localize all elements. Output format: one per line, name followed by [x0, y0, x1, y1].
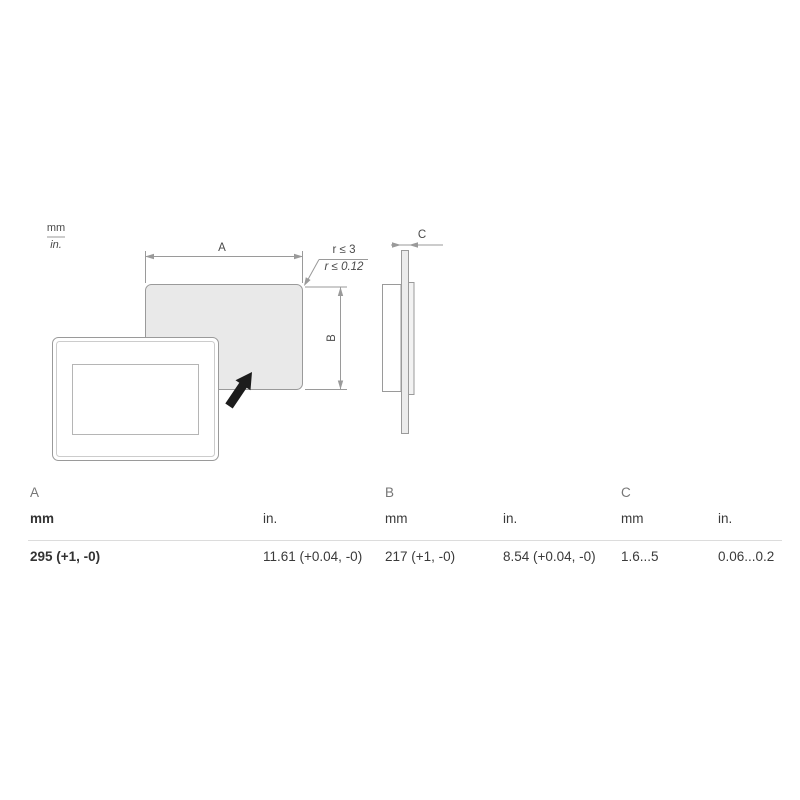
dim-c-label: C — [409, 230, 435, 242]
panel-cutout-drawing-page: mm in. A B C r ≤ 3 r ≤ 0.12 A B C mm in.… — [0, 0, 800, 800]
table-unit-b-mm: mm — [385, 512, 408, 527]
table-unit-c-in: in. — [718, 512, 732, 527]
dim-a-arrow-right — [294, 254, 303, 259]
table-group-c: C — [621, 486, 631, 501]
value-b-in: 8.54 (+0.04, -0) — [503, 550, 596, 565]
value-a-in: 11.61 (+0.04, -0) — [263, 550, 362, 565]
dim-a-lines — [146, 251, 303, 283]
table-unit-b-in: in. — [503, 512, 517, 527]
radius-note-in: r ≤ 0.12 — [320, 262, 368, 274]
dim-a-label: A — [200, 243, 244, 255]
table-divider — [28, 540, 782, 541]
value-c-in: 0.06...0.2 — [718, 550, 774, 565]
side-bezel — [409, 283, 415, 395]
table-unit-a-mm: mm — [30, 512, 54, 527]
value-a-mm: 295 (+1, -0) — [30, 550, 100, 565]
side-device-body — [383, 285, 402, 392]
table-unit-a-in: in. — [263, 512, 277, 527]
units-badge-in: in. — [40, 240, 72, 251]
dim-b-label: B — [327, 327, 341, 349]
device-screen — [73, 365, 199, 435]
dim-c-arrow-right — [409, 242, 418, 247]
device-front-view — [53, 338, 219, 461]
device-side-view — [383, 251, 415, 434]
value-c-mm: 1.6...5 — [621, 550, 659, 565]
value-b-mm: 217 (+1, -0) — [385, 550, 455, 565]
radius-note-mm: r ≤ 3 — [320, 245, 368, 257]
dim-b-arrow-top — [338, 287, 343, 296]
table-unit-c-mm: mm — [621, 512, 644, 527]
dim-c-arrow-left — [392, 242, 401, 247]
table-group-a: A — [30, 486, 39, 501]
dim-a-arrow-left — [145, 254, 154, 259]
units-badge-mm: mm — [40, 223, 72, 234]
radius-leader-arrow — [304, 277, 311, 286]
dimension-drawing — [0, 0, 800, 800]
dim-b-arrow-bottom — [338, 381, 343, 390]
side-mounting-plate — [402, 251, 409, 434]
table-group-b: B — [385, 486, 394, 501]
